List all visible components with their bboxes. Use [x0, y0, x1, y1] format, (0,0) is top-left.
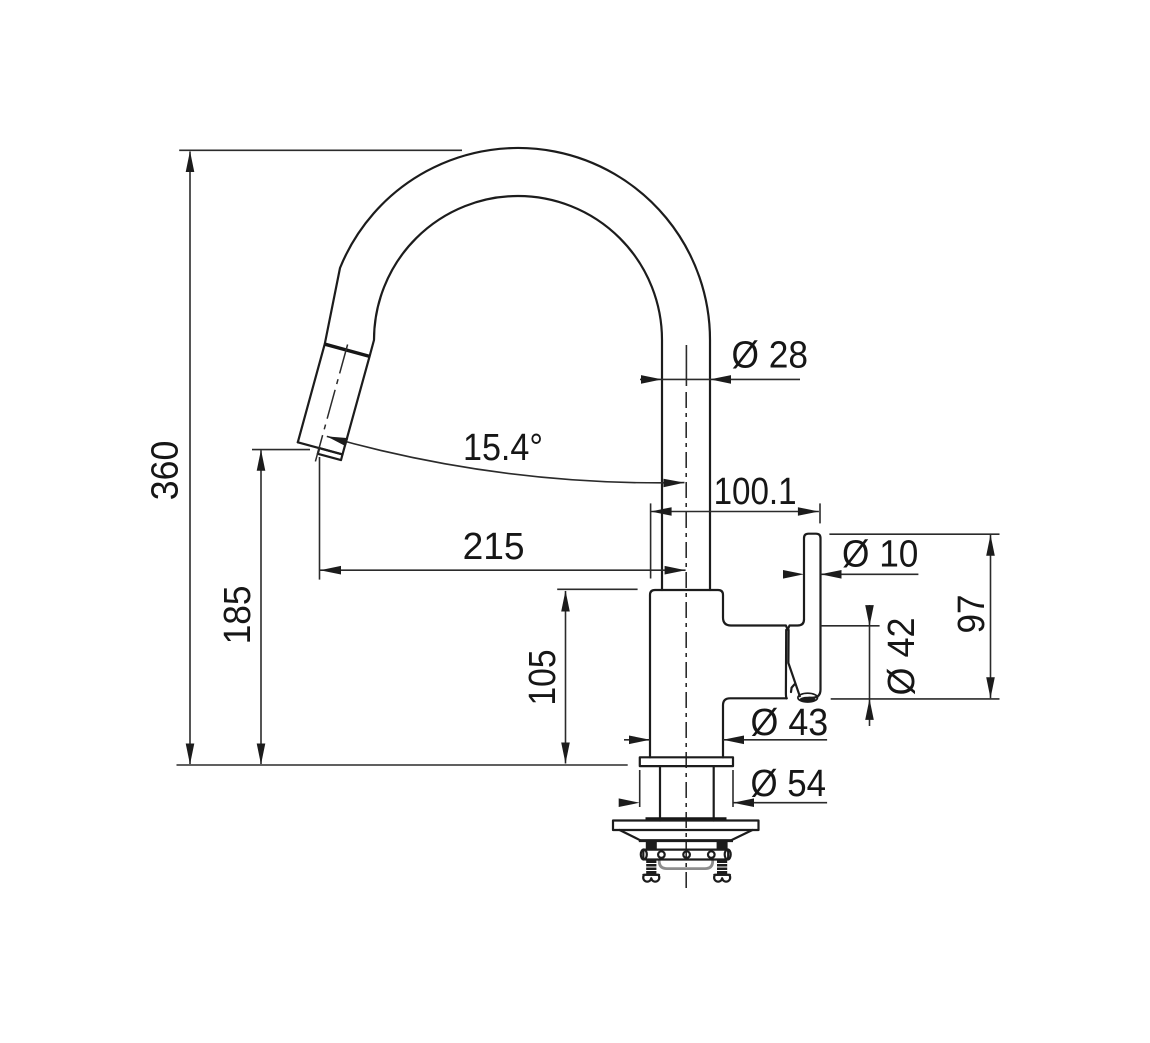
svg-text:185: 185	[217, 585, 259, 644]
svg-text:100.1: 100.1	[714, 471, 797, 513]
svg-text:15.4°: 15.4°	[463, 427, 543, 469]
svg-text:Ø 28: Ø 28	[732, 334, 809, 376]
svg-text:Ø 42: Ø 42	[881, 618, 923, 696]
svg-text:360: 360	[145, 441, 187, 501]
svg-text:97: 97	[951, 595, 993, 634]
svg-text:215: 215	[463, 526, 525, 568]
svg-text:105: 105	[522, 650, 564, 706]
svg-text:Ø 43: Ø 43	[751, 702, 829, 744]
svg-text:Ø 54: Ø 54	[751, 763, 827, 805]
svg-text:Ø 10: Ø 10	[842, 534, 918, 576]
